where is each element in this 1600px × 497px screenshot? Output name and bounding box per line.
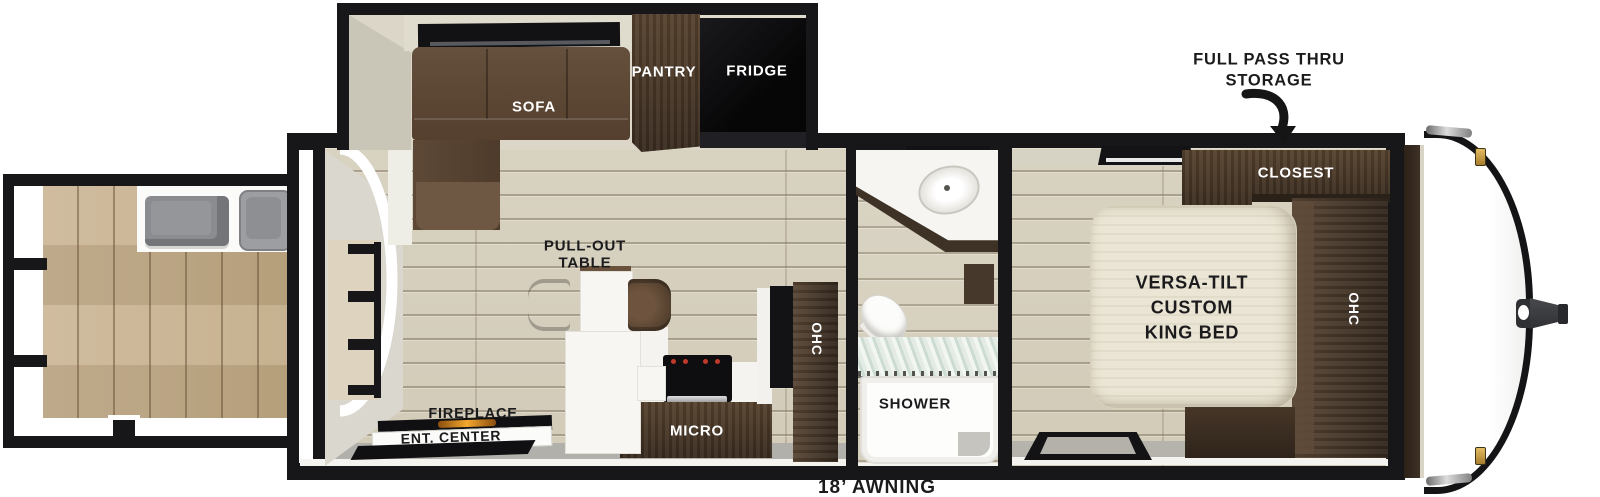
bunk-panel [328,240,378,400]
pull-out-table-label-line2: TABLE [559,255,612,272]
bedroom-window-bottom-inner [1040,437,1136,454]
kitchen-tall-unit [770,286,795,388]
bath-shelf [964,264,994,304]
shower-label: SHOWER [879,396,951,413]
pull-out-table-upper [580,271,633,335]
shower-step [958,432,990,456]
bed-label-line2: CUSTOM [1151,298,1233,319]
hitch-coupler-hole [1518,305,1529,320]
slide-floor-corner [388,150,412,245]
ladder-rung-2 [348,291,381,302]
sofa-label: SOFA [512,99,556,116]
marker-light-bottom [1475,447,1486,465]
micro-label: MICRO [670,423,724,440]
ladder-rung-3 [348,339,381,350]
sofa-seam-2 [566,49,568,119]
bedroom-dresser [1182,150,1252,212]
pantry-label: PANTRY [632,64,697,81]
pantry-cabinet [632,14,700,152]
ohc-cabinet-kitchen [793,282,838,462]
fridge-base [700,132,806,148]
stove-burner-4 [715,359,720,364]
passthru-storage-dark [1404,145,1420,478]
deck-rail-stub-2 [14,355,47,367]
stove-burner-2 [683,359,688,364]
stove-burner-1 [671,359,676,364]
stove-burner-3 [703,359,708,364]
sofa-seam-1 [486,49,488,119]
pull-out-table-lower [565,331,641,454]
storage-label-line1: FULL PASS THRU [1193,51,1345,70]
ladder-rung-4 [348,385,381,395]
slideout-frame-right [806,3,818,150]
dinette-bench-right [628,279,671,331]
hitch-tip [1558,304,1568,324]
ladder-rung-1 [348,244,381,254]
bed-label-line1: VERSA-TILT [1136,273,1249,294]
fridge-label: FRIDGE [726,63,787,80]
fridge [700,18,806,148]
deck-rail-left [3,174,14,448]
bed-label-line3: KING BED [1145,323,1239,344]
outdoor-griddle-top [246,197,281,239]
closet-label: CLOSEST [1258,165,1334,182]
dinette-bench-left [528,279,570,331]
fireplace-label: FIREPLACE [428,406,517,422]
deck-rail-bottom [3,436,289,448]
ladder-rail [374,242,381,398]
outdoor-sofa-seat [151,201,211,235]
sofa [412,47,630,140]
pull-out-table-label-line1: PULL-OUT [544,238,626,255]
slideout-frame-top [337,3,818,15]
ohc-kitchen-label: OHC [809,322,825,356]
deck-rail-top [3,174,289,186]
marker-light-top [1475,148,1486,166]
deck-rail-stub-1 [14,258,47,270]
deck-rail-post [113,420,135,436]
storage-arrow-icon [1238,88,1302,146]
slideout-frame-left [337,3,349,150]
floorplan-canvas: SOFA PANTRY FRIDGE PULL-OUT TABLE FIREPL… [0,0,1600,497]
sofa-chaise-cushion [416,182,500,230]
sofa-front-edge [414,118,628,120]
pull-out-table-arm [637,366,666,401]
bedroom-window-top [1098,146,1194,165]
bedroom-window-top-inner [1106,158,1186,162]
wall-bath-right [998,146,1012,466]
sink-drain [944,185,950,191]
counter-right [731,362,759,403]
ohc-bedroom-label: OHC [1346,292,1362,326]
bed-foot-bench [1185,407,1295,458]
awning-label: 18’ AWNING [818,477,936,497]
